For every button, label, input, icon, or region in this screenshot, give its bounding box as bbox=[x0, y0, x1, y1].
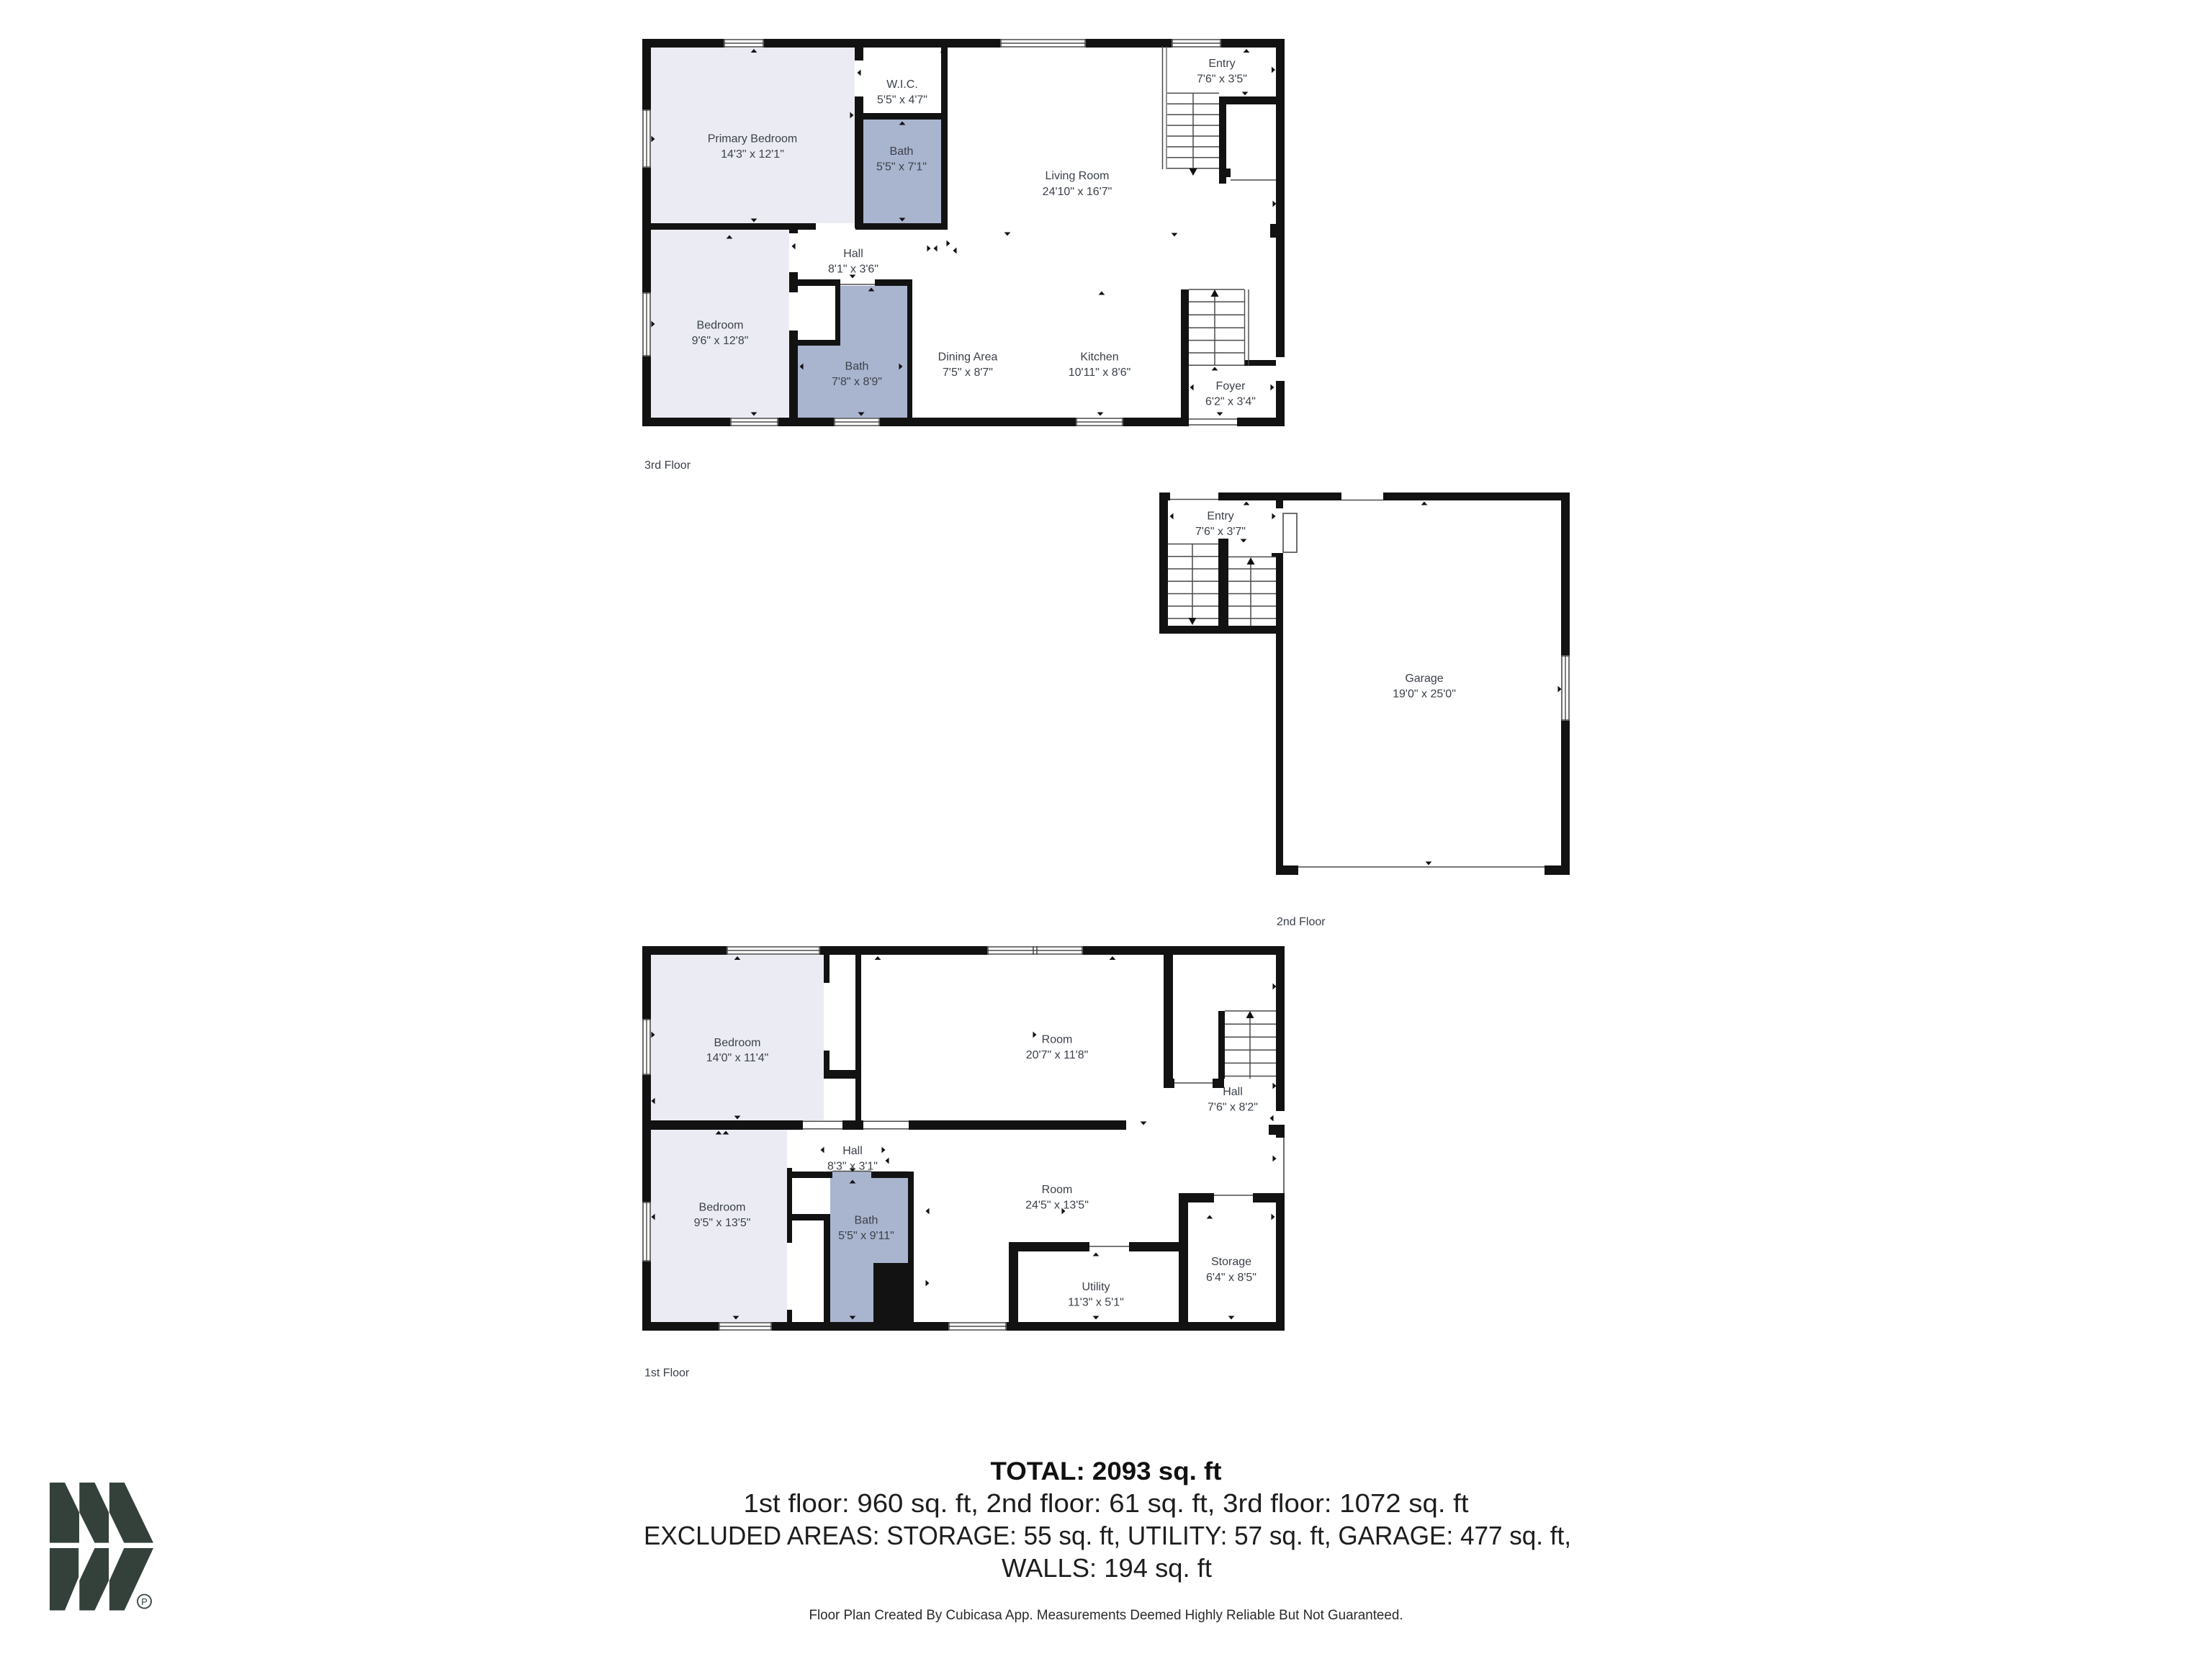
svg-text:9'6" x 12'8": 9'6" x 12'8" bbox=[692, 335, 749, 347]
svg-text:Dining Area: Dining Area bbox=[938, 351, 998, 364]
svg-text:P: P bbox=[141, 1596, 148, 1607]
svg-text:WALLS: 194 sq. ft: WALLS: 194 sq. ft bbox=[1002, 1553, 1212, 1583]
svg-text:Garage: Garage bbox=[1405, 673, 1443, 685]
svg-text:10'11" x 8'6": 10'11" x 8'6" bbox=[1069, 367, 1131, 379]
svg-text:8'3" x 3'1": 8'3" x 3'1" bbox=[827, 1161, 878, 1173]
svg-text:Room: Room bbox=[1042, 1184, 1073, 1196]
svg-text:24'10" x 16'7": 24'10" x 16'7" bbox=[1043, 186, 1112, 198]
svg-text:Bath: Bath bbox=[845, 361, 869, 373]
svg-text:Foyer: Foyer bbox=[1216, 380, 1246, 392]
svg-text:Entry: Entry bbox=[1207, 511, 1233, 523]
svg-text:Bath: Bath bbox=[855, 1215, 878, 1227]
svg-text:EXCLUDED AREAS: STORAGE: 55 sq: EXCLUDED AREAS: STORAGE: 55 sq. ft, UTIL… bbox=[644, 1521, 1571, 1550]
svg-text:Hall: Hall bbox=[1223, 1086, 1243, 1098]
svg-text:7'6" x 8'2": 7'6" x 8'2" bbox=[1208, 1102, 1258, 1114]
svg-text:1st floor: 960 sq. ft, 2nd flo: 1st floor: 960 sq. ft, 2nd floor: 61 sq.… bbox=[744, 1488, 1469, 1518]
svg-text:19'0" x 25'0": 19'0" x 25'0" bbox=[1393, 688, 1456, 701]
svg-text:9'5" x 13'5": 9'5" x 13'5" bbox=[694, 1217, 751, 1229]
svg-text:5'5" x 4'7": 5'5" x 4'7" bbox=[877, 94, 927, 107]
svg-text:Entry: Entry bbox=[1208, 58, 1235, 70]
svg-text:Bedroom: Bedroom bbox=[699, 1202, 746, 1214]
svg-text:TOTAL: 2093 sq. ft: TOTAL: 2093 sq. ft bbox=[991, 1457, 1222, 1485]
svg-text:8'1" x 3'6": 8'1" x 3'6" bbox=[828, 264, 878, 276]
svg-text:1st Floor: 1st Floor bbox=[644, 1367, 690, 1380]
svg-text:Primary Bedroom: Primary Bedroom bbox=[708, 133, 797, 145]
svg-text:7'5" x 8'7": 7'5" x 8'7" bbox=[943, 367, 993, 379]
svg-text:14'3" x 12'1": 14'3" x 12'1" bbox=[721, 148, 784, 161]
svg-text:Storage: Storage bbox=[1211, 1256, 1251, 1268]
svg-text:Bedroom: Bedroom bbox=[697, 320, 744, 332]
svg-text:7'6" x 3'7": 7'6" x 3'7" bbox=[1195, 526, 1246, 538]
svg-text:6'4" x 8'5": 6'4" x 8'5" bbox=[1206, 1272, 1256, 1284]
svg-text:2nd Floor: 2nd Floor bbox=[1277, 916, 1326, 928]
svg-text:5'5" x 9'11": 5'5" x 9'11" bbox=[838, 1230, 894, 1242]
svg-text:Floor Plan Created By Cubicasa: Floor Plan Created By Cubicasa App. Meas… bbox=[809, 1608, 1403, 1623]
svg-text:24'5" x 13'5": 24'5" x 13'5" bbox=[1025, 1200, 1089, 1212]
svg-text:7'6" x 3'5": 7'6" x 3'5" bbox=[1197, 73, 1247, 86]
svg-text:Bedroom: Bedroom bbox=[714, 1037, 761, 1049]
svg-text:W.I.C.: W.I.C. bbox=[886, 78, 918, 91]
svg-text:Hall: Hall bbox=[842, 1145, 863, 1157]
svg-text:Room: Room bbox=[1042, 1034, 1073, 1046]
svg-text:14'0" x 11'4": 14'0" x 11'4" bbox=[706, 1052, 769, 1064]
svg-text:11'3" x 5'1": 11'3" x 5'1" bbox=[1068, 1297, 1124, 1309]
svg-text:Living Room: Living Room bbox=[1046, 170, 1110, 182]
svg-text:20'7" x 11'8": 20'7" x 11'8" bbox=[1026, 1049, 1089, 1061]
svg-text:6'2" x 3'4": 6'2" x 3'4" bbox=[1205, 396, 1256, 408]
svg-text:Kitchen: Kitchen bbox=[1080, 351, 1118, 364]
svg-text:Utility: Utility bbox=[1082, 1281, 1110, 1293]
svg-text:3rd Floor: 3rd Floor bbox=[644, 459, 691, 472]
svg-text:5'5" x 7'1": 5'5" x 7'1" bbox=[876, 161, 927, 174]
svg-text:7'8" x 8'9": 7'8" x 8'9" bbox=[832, 376, 882, 388]
svg-text:Hall: Hall bbox=[843, 248, 863, 260]
svg-text:Bath: Bath bbox=[890, 145, 914, 158]
